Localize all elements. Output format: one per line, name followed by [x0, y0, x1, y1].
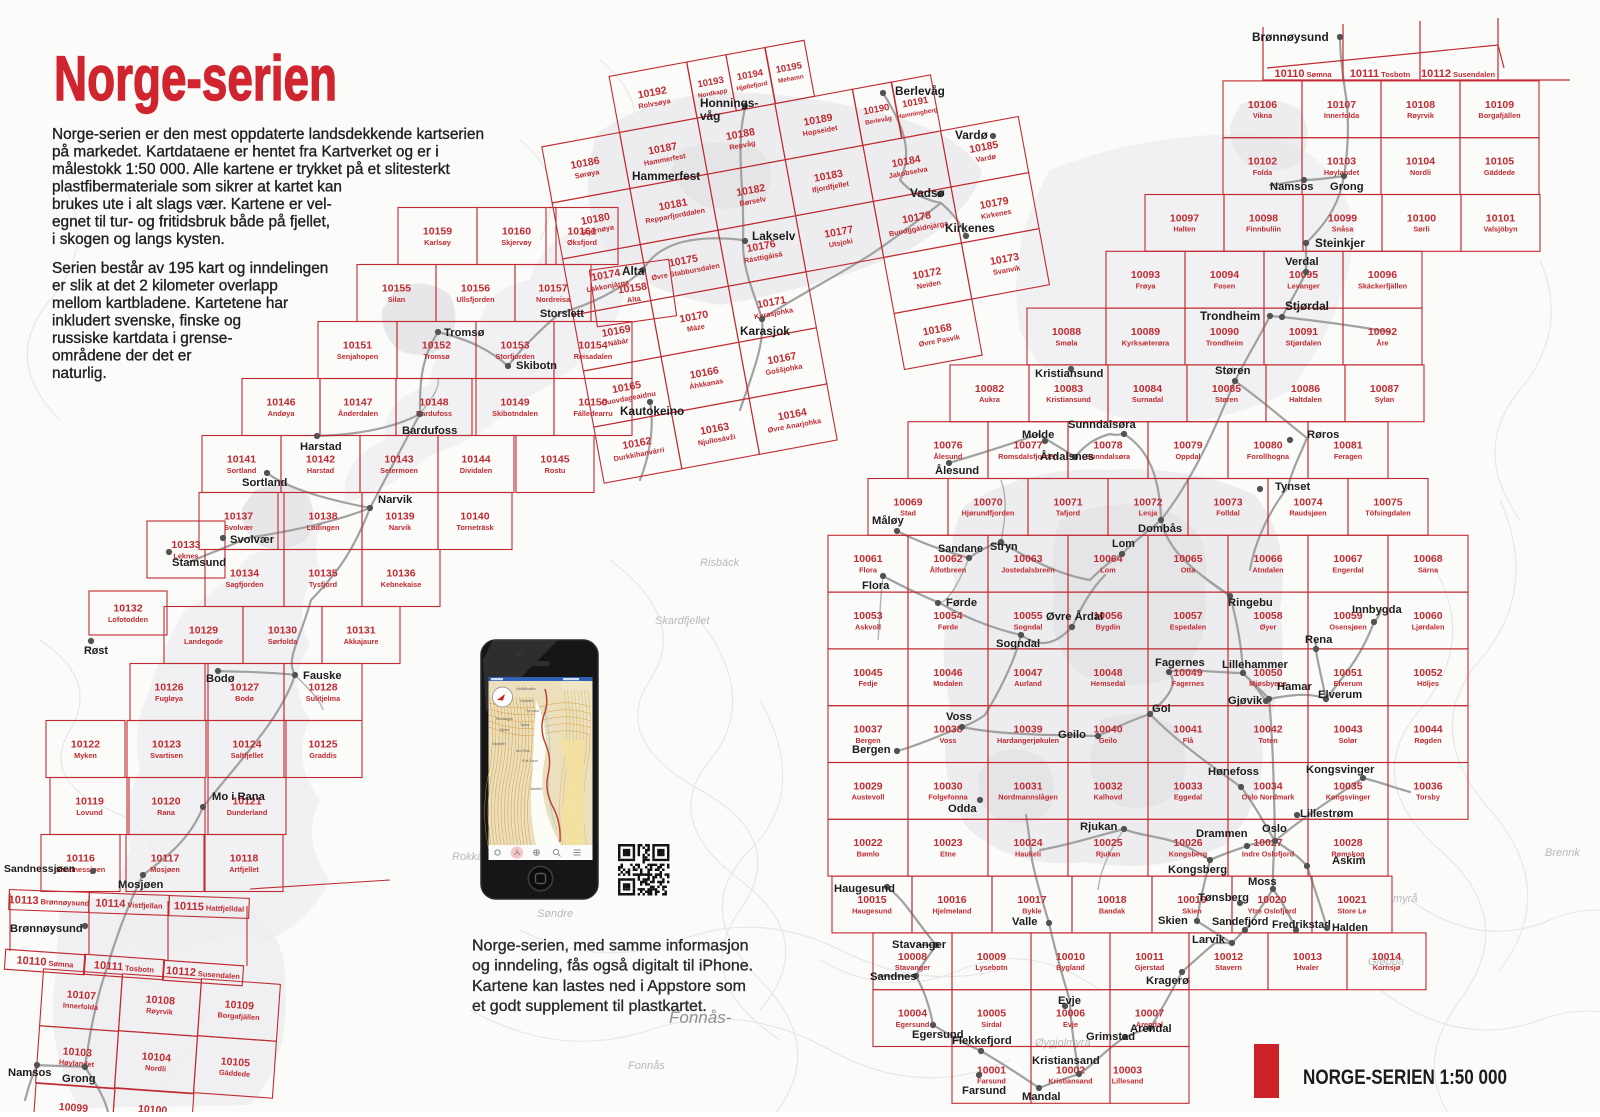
svg-text:10053: 10053 [853, 610, 882, 622]
svg-text:Øyer: Øyer [1260, 622, 1277, 631]
svg-text:Stjørdalen: Stjørdalen [1286, 338, 1322, 347]
svg-text:Søndre: Søndre [537, 908, 573, 920]
svg-text:Måløy: Måløy [872, 515, 904, 527]
svg-text:Ålfotbreen: Ålfotbreen [930, 566, 967, 575]
svg-text:Steinkjer: Steinkjer [1315, 236, 1365, 250]
svg-text:Ålesund: Ålesund [934, 452, 963, 461]
svg-text:Bodø: Bodø [206, 673, 235, 685]
svg-text:10122: 10122 [71, 739, 100, 751]
svg-text:10125: 10125 [308, 739, 337, 751]
svg-text:Hammerfest: Hammerfest [632, 169, 700, 183]
svg-text:Elverum: Elverum [1318, 689, 1362, 701]
svg-text:10015: 10015 [857, 894, 886, 906]
svg-text:10143: 10143 [384, 454, 413, 466]
svg-text:10110Sømna: 10110Sømna [1275, 68, 1333, 80]
svg-text:brukes ute i alt slags vær. Ka: brukes ute i alt slags vær. Kartene er v… [52, 196, 332, 213]
svg-text:Modalen: Modalen [933, 679, 963, 688]
svg-text:Kristiansund: Kristiansund [1046, 395, 1091, 404]
svg-text:10146: 10146 [266, 397, 295, 409]
svg-text:10128: 10128 [308, 682, 337, 694]
svg-text:Smøla: Smøla [1056, 338, 1079, 347]
svg-text:Rjukan: Rjukan [1096, 850, 1120, 859]
svg-text:Hardangerjøkulen: Hardangerjøkulen [997, 736, 1059, 745]
svg-text:10134: 10134 [230, 568, 259, 580]
svg-text:10098: 10098 [1249, 212, 1278, 224]
svg-text:Kebnekaise: Kebnekaise [381, 580, 422, 589]
svg-text:Nordli: Nordli [1410, 168, 1431, 177]
svg-text:10033: 10033 [1173, 780, 1202, 792]
svg-text:Øygjolmyra: Øygjolmyra [1034, 1037, 1091, 1049]
svg-text:10014: 10014 [1372, 951, 1401, 963]
svg-text:Askvoll: Askvoll [855, 622, 881, 631]
svg-text:10062: 10062 [933, 553, 962, 565]
svg-text:10151: 10151 [343, 340, 372, 352]
svg-text:10064: 10064 [1093, 553, 1122, 565]
svg-text:Feragen: Feragen [1334, 452, 1362, 461]
svg-text:Flekkefjord: Flekkefjord [952, 1035, 1012, 1047]
svg-text:Molde: Molde [1022, 429, 1054, 441]
svg-text:10011: 10011 [1135, 951, 1164, 963]
svg-text:10112Susendalen: 10112Susendalen [1421, 68, 1495, 80]
svg-text:er slik at det 2 kilometer ove: er slik at det 2 kilometer overlapp [52, 278, 278, 295]
svg-text:Brennk: Brennk [1545, 847, 1580, 859]
svg-text:Kirkenes: Kirkenes [945, 221, 995, 235]
svg-text:10028: 10028 [1333, 837, 1362, 849]
svg-text:Voss: Voss [940, 736, 957, 745]
svg-text:10067: 10067 [1333, 553, 1362, 565]
svg-text:Ånderdalen: Ånderdalen [338, 409, 378, 418]
svg-text:10099: 10099 [58, 1101, 88, 1112]
svg-text:Oslo: Oslo [1262, 823, 1287, 835]
svg-text:Skäckerfjällen: Skäckerfjällen [1358, 282, 1407, 291]
svg-text:Kändolen: Kändolen [520, 699, 534, 703]
svg-text:Drammen: Drammen [1196, 828, 1248, 840]
svg-text:10072: 10072 [1133, 496, 1162, 508]
svg-text:10032: 10032 [1093, 780, 1122, 792]
svg-text:10005: 10005 [977, 1008, 1006, 1020]
svg-text:Aukra: Aukra [979, 395, 1001, 404]
svg-text:10017: 10017 [1017, 894, 1046, 906]
svg-text:10046: 10046 [933, 667, 962, 679]
svg-text:Kristiansund: Kristiansund [1035, 368, 1104, 380]
svg-text:10078: 10078 [1093, 440, 1122, 452]
svg-text:10108: 10108 [1406, 99, 1435, 111]
svg-text:10109: 10109 [1485, 99, 1514, 111]
svg-text:10103: 10103 [1327, 156, 1356, 168]
svg-text:Arendal: Arendal [1130, 1023, 1172, 1035]
svg-text:Bandak: Bandak [1099, 906, 1126, 915]
svg-text:10129: 10129 [189, 625, 218, 637]
svg-text:Svartisen: Svartisen [150, 751, 183, 760]
svg-text:Austevoll: Austevoll [852, 793, 885, 802]
svg-text:Hønefoss: Hønefoss [1208, 766, 1259, 778]
svg-text:10034: 10034 [1253, 780, 1282, 792]
svg-text:Sirdal: Sirdal [981, 1020, 1001, 1029]
svg-text:Lom: Lom [1100, 566, 1116, 575]
svg-text:10131: 10131 [346, 625, 375, 637]
svg-text:Storslett: Storslett [540, 308, 584, 320]
svg-text:Mosjøen: Mosjøen [118, 879, 164, 891]
svg-text:10117: 10117 [151, 853, 180, 865]
svg-text:naturlig.: naturlig. [52, 365, 107, 382]
svg-text:Folldal: Folldal [1216, 509, 1240, 518]
svg-text:Innbygda: Innbygda [1352, 604, 1402, 616]
svg-text:10054: 10054 [933, 610, 962, 622]
svg-text:10013: 10013 [1293, 951, 1322, 963]
svg-text:Stryn: Stryn [990, 541, 1018, 553]
svg-text:Brønnøysund: Brønnøysund [1252, 30, 1329, 44]
svg-text:Harstad: Harstad [307, 466, 334, 475]
svg-text:Svolvær: Svolvær [224, 523, 253, 532]
svg-text:Rana: Rana [157, 808, 176, 817]
svg-text:Mandal: Mandal [1022, 1091, 1061, 1103]
svg-text:Sandane: Sandane [938, 543, 983, 555]
svg-text:Kongsberg: Kongsberg [1169, 850, 1208, 859]
svg-text:Farsund: Farsund [962, 1085, 1006, 1097]
svg-text:Hamar: Hamar [1277, 681, 1312, 693]
svg-text:Øksfjord: Øksfjord [567, 238, 597, 247]
svg-text:10141: 10141 [227, 454, 256, 466]
svg-text:Trondheim: Trondheim [1206, 338, 1244, 347]
svg-text:10100: 10100 [1407, 212, 1436, 224]
svg-text:Fugløya: Fugløya [155, 694, 184, 703]
svg-text:10007: 10007 [1135, 1008, 1164, 1020]
svg-text:Årdalsnes: Årdalsnes [1040, 450, 1094, 463]
svg-text:Tynset: Tynset [1275, 481, 1311, 493]
svg-text:10107: 10107 [1327, 99, 1356, 111]
svg-text:10118: 10118 [230, 853, 259, 865]
svg-text:Bygdin: Bygdin [1096, 622, 1121, 631]
svg-text:Gjøvik: Gjøvik [1228, 695, 1263, 707]
svg-text:Narvik: Narvik [378, 494, 413, 506]
svg-text:Landegode: Landegode [184, 637, 223, 646]
svg-text:Skien: Skien [1158, 915, 1188, 927]
svg-text:10073: 10073 [1213, 496, 1242, 508]
svg-text:Norge-serien, med samme inform: Norge-serien, med samme informasjon [472, 938, 749, 955]
svg-text:Fonnås: Fonnås [628, 1060, 665, 1072]
svg-text:inkludert svenske, finske og: inkludert svenske, finske og [52, 313, 241, 330]
svg-text:10024: 10024 [1013, 837, 1042, 849]
svg-text:Lillestrøm: Lillestrøm [1300, 808, 1354, 820]
svg-text:10140: 10140 [460, 511, 489, 523]
svg-text:10025: 10025 [1093, 837, 1122, 849]
svg-text:10068: 10068 [1413, 553, 1442, 565]
svg-text:Rostu: Rostu [545, 466, 566, 475]
svg-text:Kornsjø: Kornsjø [1373, 963, 1401, 972]
svg-text:10154: 10154 [578, 340, 607, 352]
svg-text:Hemsedal: Hemsedal [1091, 679, 1125, 688]
svg-text:10089: 10089 [1131, 326, 1160, 338]
svg-text:10086: 10086 [1291, 383, 1320, 395]
svg-text:10023: 10023 [933, 837, 962, 849]
svg-text:10160: 10160 [502, 226, 531, 238]
svg-text:Karasjok: Karasjok [740, 324, 790, 338]
svg-text:Røgden: Røgden [1414, 736, 1441, 745]
svg-text:10058: 10058 [1253, 610, 1282, 622]
svg-text:Narvik: Narvik [389, 523, 412, 532]
svg-text:10021: 10021 [1337, 894, 1366, 906]
svg-text:Sortland: Sortland [242, 477, 288, 489]
svg-text:Bygland: Bygland [1056, 963, 1085, 972]
svg-text:10055: 10055 [1013, 610, 1042, 622]
svg-text:Kragerø: Kragerø [1146, 975, 1189, 987]
svg-text:Valle: Valle [1012, 916, 1038, 928]
svg-text:10132: 10132 [113, 603, 142, 615]
svg-text:Silan: Silan [388, 295, 405, 304]
svg-text:10085: 10085 [1212, 383, 1241, 395]
svg-text:10008: 10008 [898, 951, 927, 963]
svg-text:Kyrksæterøra: Kyrksæterøra [1122, 338, 1170, 347]
svg-text:10106: 10106 [1248, 99, 1277, 111]
svg-text:Voss: Voss [946, 711, 972, 723]
svg-text:Risbäck: Risbäck [700, 557, 740, 569]
svg-text:Toten: Toten [1258, 736, 1277, 745]
svg-text:Sørli: Sørli [1413, 225, 1429, 234]
svg-text:Senjahopen: Senjahopen [337, 352, 378, 361]
svg-text:Sortland: Sortland [227, 466, 257, 475]
svg-text:10048: 10048 [1093, 667, 1122, 679]
svg-text:Vikna: Vikna [1253, 111, 1273, 120]
svg-text:Engerdal: Engerdal [1332, 566, 1363, 575]
svg-text:10100: 10100 [138, 1103, 168, 1112]
svg-text:10063: 10063 [1013, 553, 1042, 565]
svg-text:10092: 10092 [1368, 326, 1397, 338]
svg-text:Höljes: Höljes [1417, 679, 1439, 688]
svg-text:10088: 10088 [1052, 326, 1081, 338]
svg-text:10142: 10142 [306, 454, 335, 466]
svg-text:Brønnøysund: Brønnøysund [10, 923, 83, 935]
svg-text:Larvik: Larvik [1192, 934, 1226, 946]
svg-text:10093: 10093 [1131, 269, 1160, 281]
svg-text:Tønsberg: Tønsberg [1198, 892, 1249, 904]
svg-text:Mauttied: Mauttied [530, 787, 542, 791]
svg-text:Kärtåtålndåne: Kärtåtålndåne [516, 687, 536, 691]
svg-text:Ullsfjorden: Ullsfjorden [456, 295, 494, 304]
svg-text:Kautokeino: Kautokeino [620, 404, 684, 418]
svg-text:Sandefjord: Sandefjord [1212, 916, 1268, 928]
svg-text:10130: 10130 [268, 625, 297, 637]
svg-text:Røyrvik: Røyrvik [1407, 111, 1435, 120]
svg-text:10124: 10124 [232, 739, 261, 751]
svg-text:Sogndal: Sogndal [1014, 622, 1043, 631]
svg-text:Fredrikstad: Fredrikstad [1272, 919, 1331, 931]
svg-text:plastfibermateriale som sikrer: plastfibermateriale som sikrer at kartet… [52, 179, 342, 196]
svg-text:Gäddede: Gäddede [1484, 168, 1515, 177]
svg-text:Bergen: Bergen [852, 744, 891, 756]
svg-text:10060: 10060 [1413, 610, 1442, 622]
svg-text:Andøya: Andøya [268, 409, 296, 418]
svg-text:områdene der det er: områdene der det er [52, 348, 191, 365]
svg-text:Dunderland: Dunderland [227, 808, 268, 817]
svg-text:10137: 10137 [224, 511, 253, 523]
svg-text:Kongsberg: Kongsberg [1168, 864, 1227, 876]
svg-text:Stjørdal: Stjørdal [1285, 299, 1329, 313]
svg-text:Sylan: Sylan [1375, 395, 1394, 404]
svg-text:Haltdalen: Haltdalen [1289, 395, 1322, 404]
svg-text:10010: 10010 [1056, 951, 1085, 963]
svg-text:10041: 10041 [1173, 724, 1202, 736]
svg-text:10096: 10096 [1368, 269, 1397, 281]
svg-text:Vikafjellet: Vikafjellet [492, 742, 506, 746]
svg-text:Lillesand: Lillesand [1112, 1077, 1144, 1086]
svg-text:10148: 10148 [419, 397, 448, 409]
svg-text:10099: 10099 [1328, 212, 1357, 224]
svg-text:Espedalen: Espedalen [1170, 622, 1207, 631]
svg-text:10153: 10153 [500, 340, 529, 352]
svg-text:10087: 10087 [1370, 383, 1399, 395]
svg-text:Valsjöbyn: Valsjöbyn [1483, 225, 1517, 234]
svg-text:10029: 10029 [853, 780, 882, 792]
svg-text:Stor-bergen: Stor-bergen [496, 717, 513, 721]
svg-text:10035: 10035 [1333, 780, 1362, 792]
svg-text:Førde: Førde [946, 597, 977, 609]
svg-text:Grimstad: Grimstad [1086, 1031, 1135, 1043]
svg-text:10157: 10157 [538, 283, 567, 295]
svg-text:10082: 10082 [975, 383, 1004, 395]
svg-text:i skogen og langs kysten.: i skogen og langs kysten. [52, 231, 225, 248]
svg-text:Harstad: Harstad [300, 441, 342, 453]
svg-text:Bardufoss: Bardufoss [402, 425, 457, 437]
svg-text:Särna: Särna [1418, 566, 1439, 575]
svg-text:Folda: Folda [1253, 168, 1273, 177]
svg-text:Svolvær: Svolvær [230, 534, 275, 546]
svg-text:Bømlo: Bømlo [857, 850, 880, 859]
svg-text:Sogndal: Sogndal [996, 638, 1040, 650]
svg-text:Sandnessjøen: Sandnessjøen [4, 863, 75, 875]
svg-text:10057: 10057 [1173, 610, 1202, 622]
svg-text:10065: 10065 [1173, 553, 1202, 565]
svg-text:Indre Oslofjord: Indre Oslofjord [1242, 850, 1294, 859]
svg-text:10126: 10126 [154, 682, 183, 694]
svg-text:Gjerstad: Gjerstad [1135, 963, 1165, 972]
svg-text:Vadsø: Vadsø [910, 186, 946, 200]
svg-text:10061: 10061 [853, 553, 882, 565]
svg-text:10147: 10147 [343, 397, 372, 409]
svg-text:Kartene kan lastes ned i Appst: Kartene kan lastes ned i Appstore som [472, 978, 746, 995]
svg-text:Vardø: Vardø [955, 128, 989, 142]
svg-text:Karlsøy: Karlsøy [424, 238, 452, 247]
svg-text:Bykle: Bykle [1022, 906, 1041, 915]
svg-text:Lysebotn: Lysebotn [975, 963, 1007, 972]
svg-text:Sandnes: Sandnes [870, 971, 917, 983]
svg-text:Bjerka: Bjerka [500, 728, 509, 732]
svg-text:10090: 10090 [1210, 326, 1239, 338]
svg-text:Skibotndalen: Skibotndalen [492, 409, 538, 418]
svg-text:Moss: Moss [1248, 876, 1277, 888]
svg-text:Berlevåg: Berlevåg [895, 84, 945, 98]
svg-text:Akkajaure: Akkajaure [344, 637, 379, 646]
svg-text:Store Le: Store Le [1337, 906, 1366, 915]
svg-text:Otta: Otta [1181, 566, 1197, 575]
svg-text:våg: våg [700, 109, 720, 123]
svg-text:10080: 10080 [1253, 440, 1282, 452]
svg-text:Namsos: Namsos [1270, 181, 1314, 193]
svg-text:10133: 10133 [171, 539, 200, 551]
svg-text:10144: 10144 [461, 454, 490, 466]
svg-text:10091: 10091 [1289, 326, 1318, 338]
svg-text:10039: 10039 [1013, 724, 1042, 736]
svg-text:Frøya: Frøya [1136, 282, 1157, 291]
svg-text:Lofotodden: Lofotodden [108, 615, 148, 624]
svg-text:på markedet. Kartdataene er he: på markedet. Kartdataene er hentet fra K… [52, 144, 439, 161]
svg-text:Halten: Halten [1173, 225, 1195, 234]
svg-text:10136: 10136 [386, 568, 415, 580]
svg-text:10027: 10027 [1253, 837, 1282, 849]
svg-text:Gol: Gol [1152, 703, 1171, 715]
svg-text:10043: 10043 [1333, 724, 1362, 736]
svg-text:10004: 10004 [898, 1008, 927, 1020]
svg-text:10119: 10119 [75, 796, 104, 808]
svg-text:Lesja: Lesja [1139, 509, 1159, 518]
svg-text:10006: 10006 [1056, 1008, 1085, 1020]
svg-text:Grong: Grong [62, 1073, 96, 1085]
svg-text:Rena: Rena [1305, 634, 1333, 646]
svg-text:et godt supplement til plastka: et godt supplement til plastkartet. [472, 998, 707, 1015]
svg-text:Hjelmeland: Hjelmeland [933, 906, 972, 915]
svg-text:Stavanger: Stavanger [892, 939, 947, 951]
svg-text:Bodø: Bodø [235, 694, 254, 703]
svg-text:Ljørdalen: Ljørdalen [1412, 622, 1445, 631]
svg-text:Graddis: Graddis [309, 751, 337, 760]
svg-text:Mosjøen: Mosjøen [150, 865, 180, 874]
svg-text:Røyrvik: Røyrvik [146, 1006, 174, 1017]
svg-text:10077: 10077 [1013, 440, 1042, 452]
svg-text:10044: 10044 [1413, 724, 1442, 736]
svg-text:Sunndalsøra: Sunndalsøra [1068, 419, 1137, 431]
svg-text:Grong: Grong [1330, 181, 1364, 193]
svg-text:Fagernes: Fagernes [1155, 657, 1205, 669]
svg-text:Skibotn: Skibotn [516, 360, 557, 372]
svg-text:Ringebu: Ringebu [1228, 597, 1273, 609]
svg-text:myrå: myrå [1393, 893, 1417, 905]
svg-text:Halden: Halden [1332, 922, 1368, 934]
svg-text:Namsos: Namsos [8, 1067, 52, 1079]
svg-text:Oppdal: Oppdal [1175, 452, 1200, 461]
svg-text:Raudsjøen: Raudsjøen [1289, 509, 1326, 518]
svg-text:Øvre Årdal: Øvre Årdal [1046, 610, 1103, 623]
svg-text:10052: 10052 [1413, 667, 1442, 679]
svg-text:Eggedal: Eggedal [1174, 793, 1202, 802]
svg-text:Dividalen: Dividalen [460, 466, 492, 475]
svg-text:10156: 10156 [461, 283, 490, 295]
svg-text:Røros: Røros [1307, 429, 1339, 441]
svg-text:Tyr-vasst: Tyr-vasst [526, 709, 539, 713]
svg-text:10030: 10030 [933, 780, 962, 792]
svg-text:Evje: Evje [1058, 995, 1081, 1007]
svg-text:Fauske: Fauske [303, 670, 342, 682]
svg-text:Myken: Myken [74, 751, 97, 760]
svg-text:Hjørundfjorden: Hjørundfjorden [962, 509, 1015, 518]
svg-text:Innerfolda: Innerfolda [1324, 111, 1360, 120]
svg-text:10101: 10101 [1486, 212, 1515, 224]
svg-text:Borgafjällen: Borgafjällen [1478, 111, 1520, 120]
svg-text:10145: 10145 [540, 454, 569, 466]
svg-text:Verdal: Verdal [1285, 256, 1319, 268]
svg-text:mellom kartbladene. Kartetene: mellom kartbladene. Kartetene har [52, 295, 288, 312]
svg-text:Geilo: Geilo [1058, 729, 1086, 741]
svg-text:10042: 10042 [1253, 724, 1282, 736]
svg-text:Fi-te-Saure: Fi-te-Saure [522, 759, 538, 763]
svg-text:Kristiansand: Kristiansand [1032, 1055, 1100, 1067]
svg-text:Jostedalsbreen: Jostedalsbreen [1001, 566, 1055, 575]
svg-text:Flora: Flora [859, 566, 878, 575]
svg-text:Lakselv: Lakselv [752, 229, 796, 243]
svg-text:10084: 10084 [1133, 383, 1162, 395]
svg-text:Nordreisa: Nordreisa [536, 295, 571, 304]
svg-text:Stavern: Stavern [1215, 963, 1242, 972]
svg-text:10081: 10081 [1333, 440, 1362, 452]
svg-text:Hvaler: Hvaler [1296, 963, 1318, 972]
